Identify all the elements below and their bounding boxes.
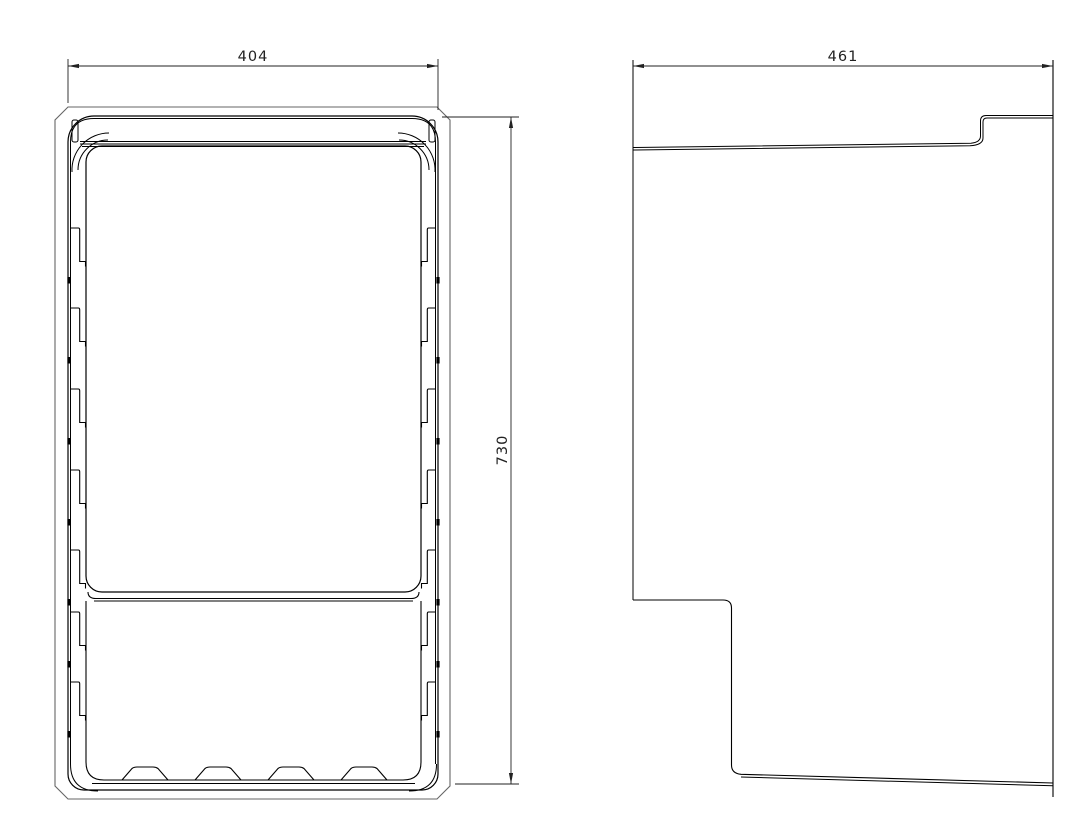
dim-arrow-left (633, 64, 644, 68)
dim-width-value: 404 (238, 49, 269, 65)
bottom-ribs (122, 767, 387, 780)
dim-arrow-top (509, 117, 513, 128)
dim-height-value: 730 (495, 435, 511, 466)
dim-height: 730 (442, 117, 519, 784)
side-top-profile (633, 116, 1053, 151)
technical-drawing: 404 730 461 (0, 0, 1091, 840)
dim-arrow-left (68, 64, 79, 68)
front-outer-shell (55, 107, 450, 799)
dim-depth: 461 (633, 49, 1053, 68)
side-view: 461 (633, 49, 1053, 797)
liner-opening (86, 146, 421, 592)
dim-depth-value: 461 (828, 49, 859, 65)
dim-arrow-right (427, 64, 438, 68)
compartment-separator (88, 592, 419, 601)
flange-band-outer (68, 116, 438, 790)
flange-band-inner (71, 119, 436, 765)
dim-extension-lines (68, 59, 438, 110)
wall-features-left (67, 120, 109, 791)
dim-arrow-bottom (509, 773, 513, 784)
dim-width: 404 (68, 49, 438, 110)
bottom-base-lines (92, 780, 415, 784)
side-bottom-profile (633, 600, 1053, 786)
front-view: 404 730 (55, 49, 519, 799)
wall-features-right (398, 120, 440, 791)
dim-arrow-right (1042, 64, 1053, 68)
drawing-sheet: 404 730 461 (0, 0, 1091, 840)
